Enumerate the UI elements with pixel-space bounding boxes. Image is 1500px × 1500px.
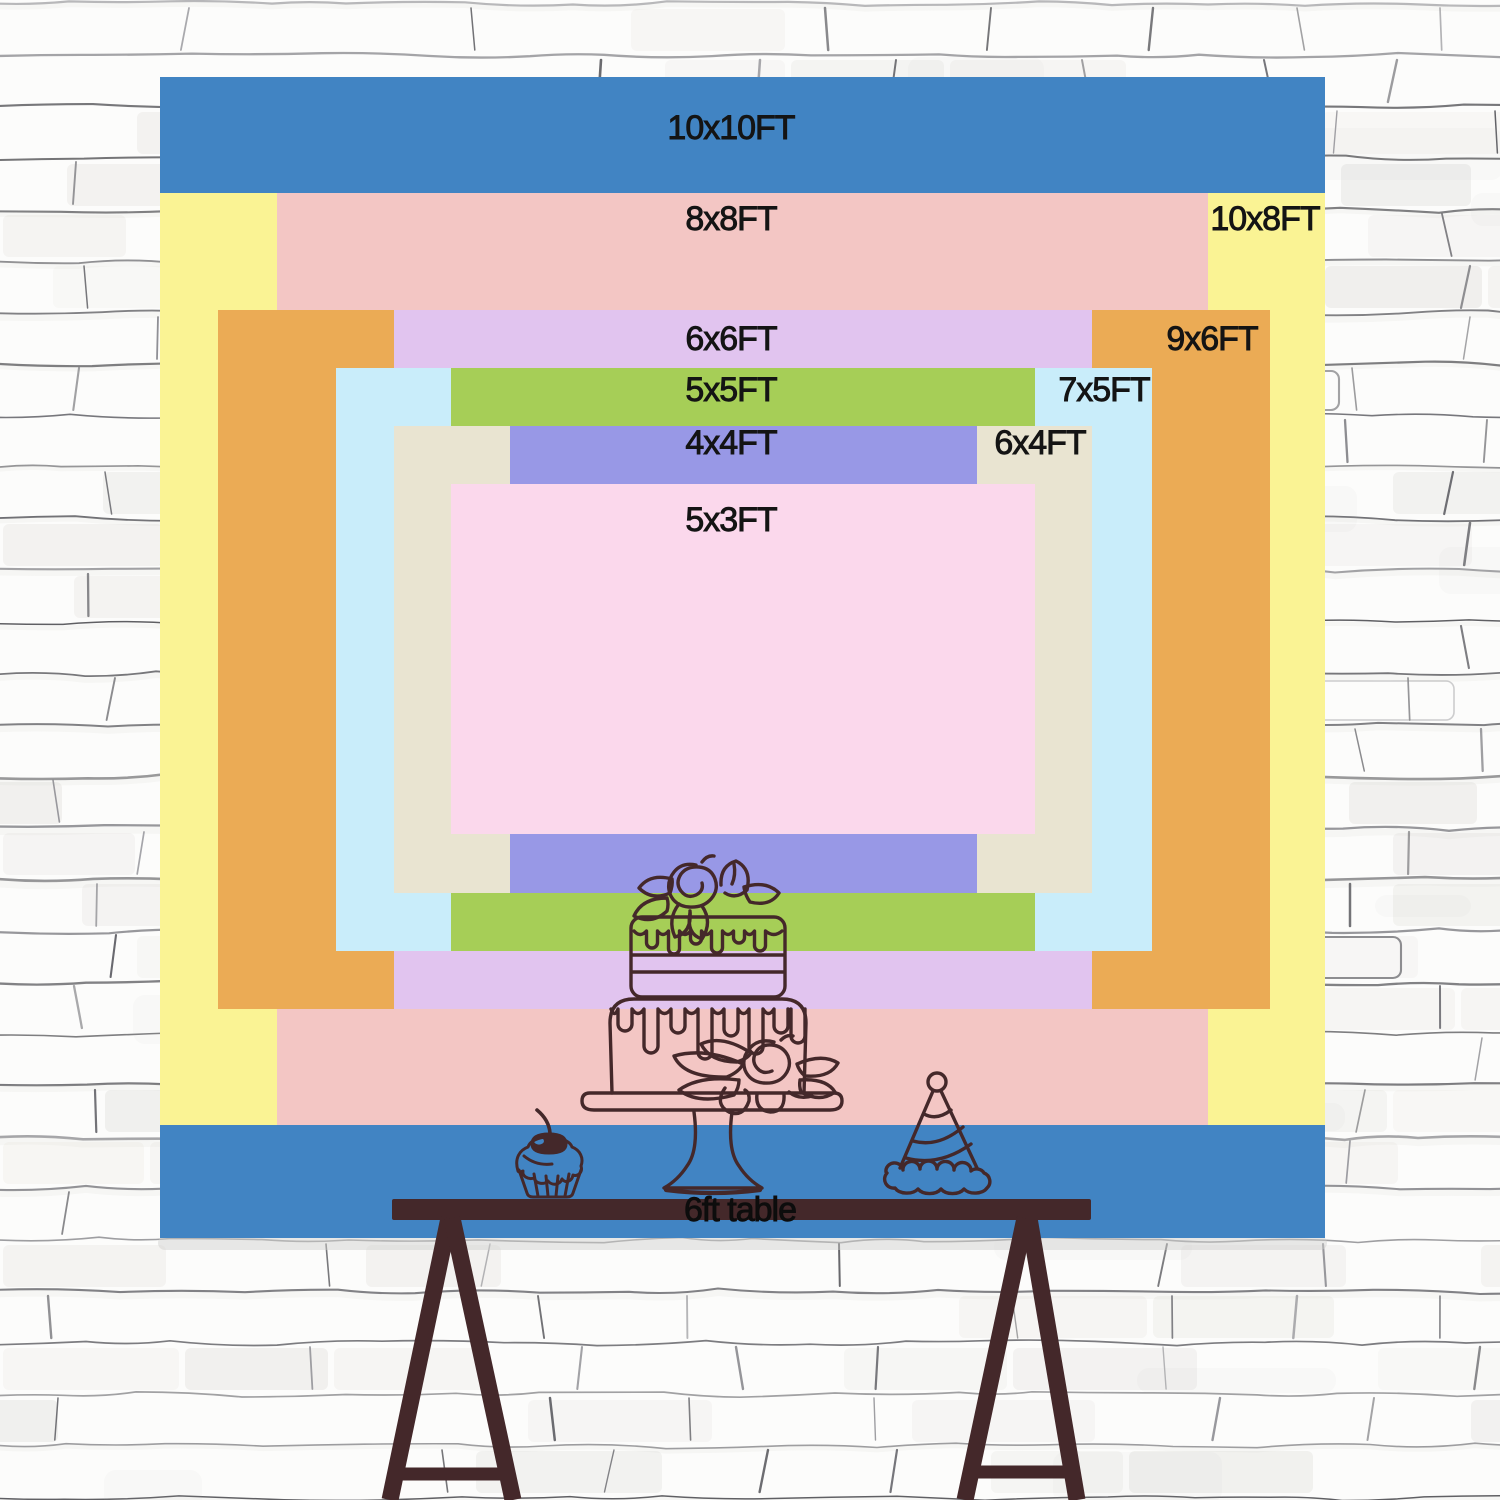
svg-text:7x5FT: 7x5FT [1058, 371, 1150, 409]
svg-text:6ft table: 6ft table [684, 1191, 796, 1229]
svg-text:10x8FT: 10x8FT [1210, 200, 1319, 238]
svg-text:5x3FT: 5x3FT [685, 501, 777, 539]
svg-text:6x6FT: 6x6FT [685, 320, 777, 358]
svg-text:6x4FT: 6x4FT [994, 424, 1086, 462]
svg-text:9x6FT: 9x6FT [1166, 320, 1258, 358]
svg-text:10x10FT: 10x10FT [667, 109, 794, 147]
svg-text:8x8FT: 8x8FT [685, 200, 777, 238]
svg-text:5x5FT: 5x5FT [685, 371, 777, 409]
svg-text:4x4FT: 4x4FT [685, 424, 777, 462]
